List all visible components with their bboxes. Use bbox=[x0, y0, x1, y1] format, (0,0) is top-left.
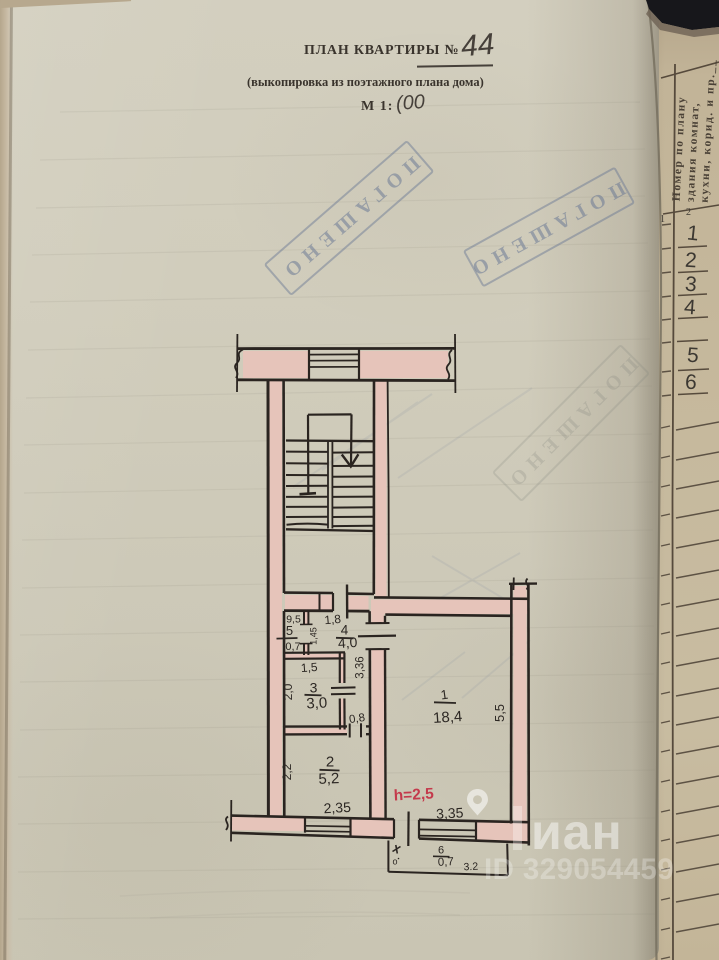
svg-text:ID 329054459: ID 329054459 bbox=[484, 853, 674, 886]
svg-text:иан: иан bbox=[531, 804, 623, 860]
